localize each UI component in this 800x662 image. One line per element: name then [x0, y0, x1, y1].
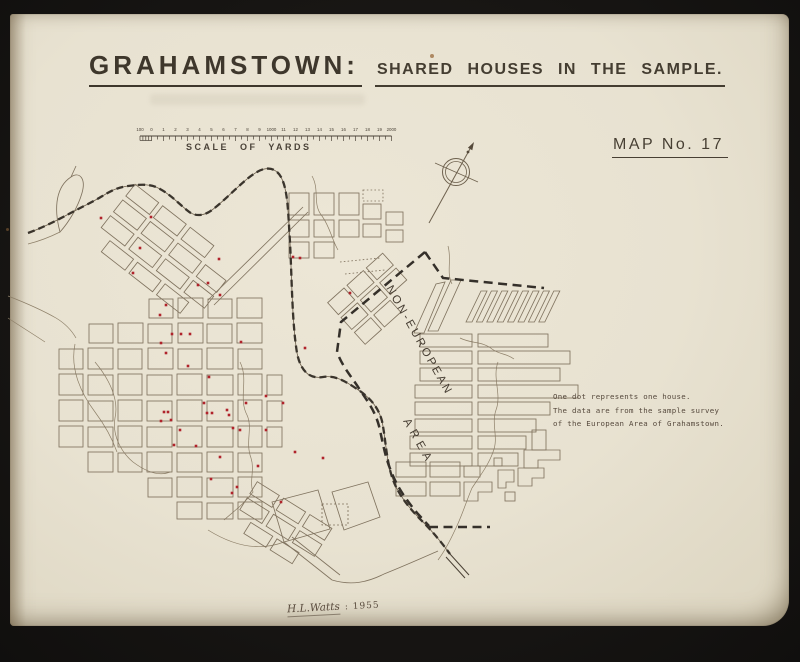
svg-text:9: 9	[258, 127, 261, 132]
svg-text:14: 14	[317, 127, 322, 132]
svg-text:11: 11	[281, 127, 286, 132]
svg-text:NON-EUROPEAN: NON-EUROPEAN	[383, 284, 454, 398]
area-label: AREA	[400, 417, 436, 468]
svg-text:17: 17	[353, 127, 358, 132]
svg-text:16: 16	[341, 127, 346, 132]
legend-note-line: The data are from the sample survey	[553, 404, 724, 418]
svg-text:8: 8	[246, 127, 249, 132]
compass-icon	[429, 142, 478, 223]
svg-text:2: 2	[174, 127, 177, 132]
legend-note-line: of the European Area of Grahamstown.	[553, 417, 724, 431]
scale-bar: 100012345678910001112131415161718192000	[136, 127, 397, 141]
svg-text:19: 19	[377, 127, 382, 132]
svg-text:1: 1	[162, 127, 165, 132]
svg-text:4: 4	[198, 127, 201, 132]
svg-text:15: 15	[329, 127, 334, 132]
signature-year: : 1955	[345, 601, 380, 613]
svg-text:AREA: AREA	[400, 417, 436, 468]
city-map: 100012345678910001112131415161718192000	[0, 0, 800, 662]
legend-note-line: One dot represents one house.	[553, 390, 724, 404]
svg-text:6: 6	[222, 127, 225, 132]
svg-text:2000: 2000	[387, 127, 397, 132]
svg-text:3: 3	[186, 127, 189, 132]
svg-text:1000: 1000	[267, 127, 277, 132]
street-network	[57, 166, 578, 583]
signature-name: H.L.Watts	[287, 601, 340, 618]
svg-text:0: 0	[150, 127, 153, 132]
svg-text:5: 5	[210, 127, 213, 132]
house-dots	[100, 216, 352, 504]
legend-note: One dot represents one house. The data a…	[553, 390, 724, 431]
svg-text:12: 12	[293, 127, 298, 132]
svg-text:7: 7	[234, 127, 237, 132]
svg-text:18: 18	[365, 127, 370, 132]
non-european-label: NON-EUROPEAN	[383, 284, 454, 398]
svg-text:100: 100	[136, 127, 144, 132]
svg-text:13: 13	[305, 127, 310, 132]
